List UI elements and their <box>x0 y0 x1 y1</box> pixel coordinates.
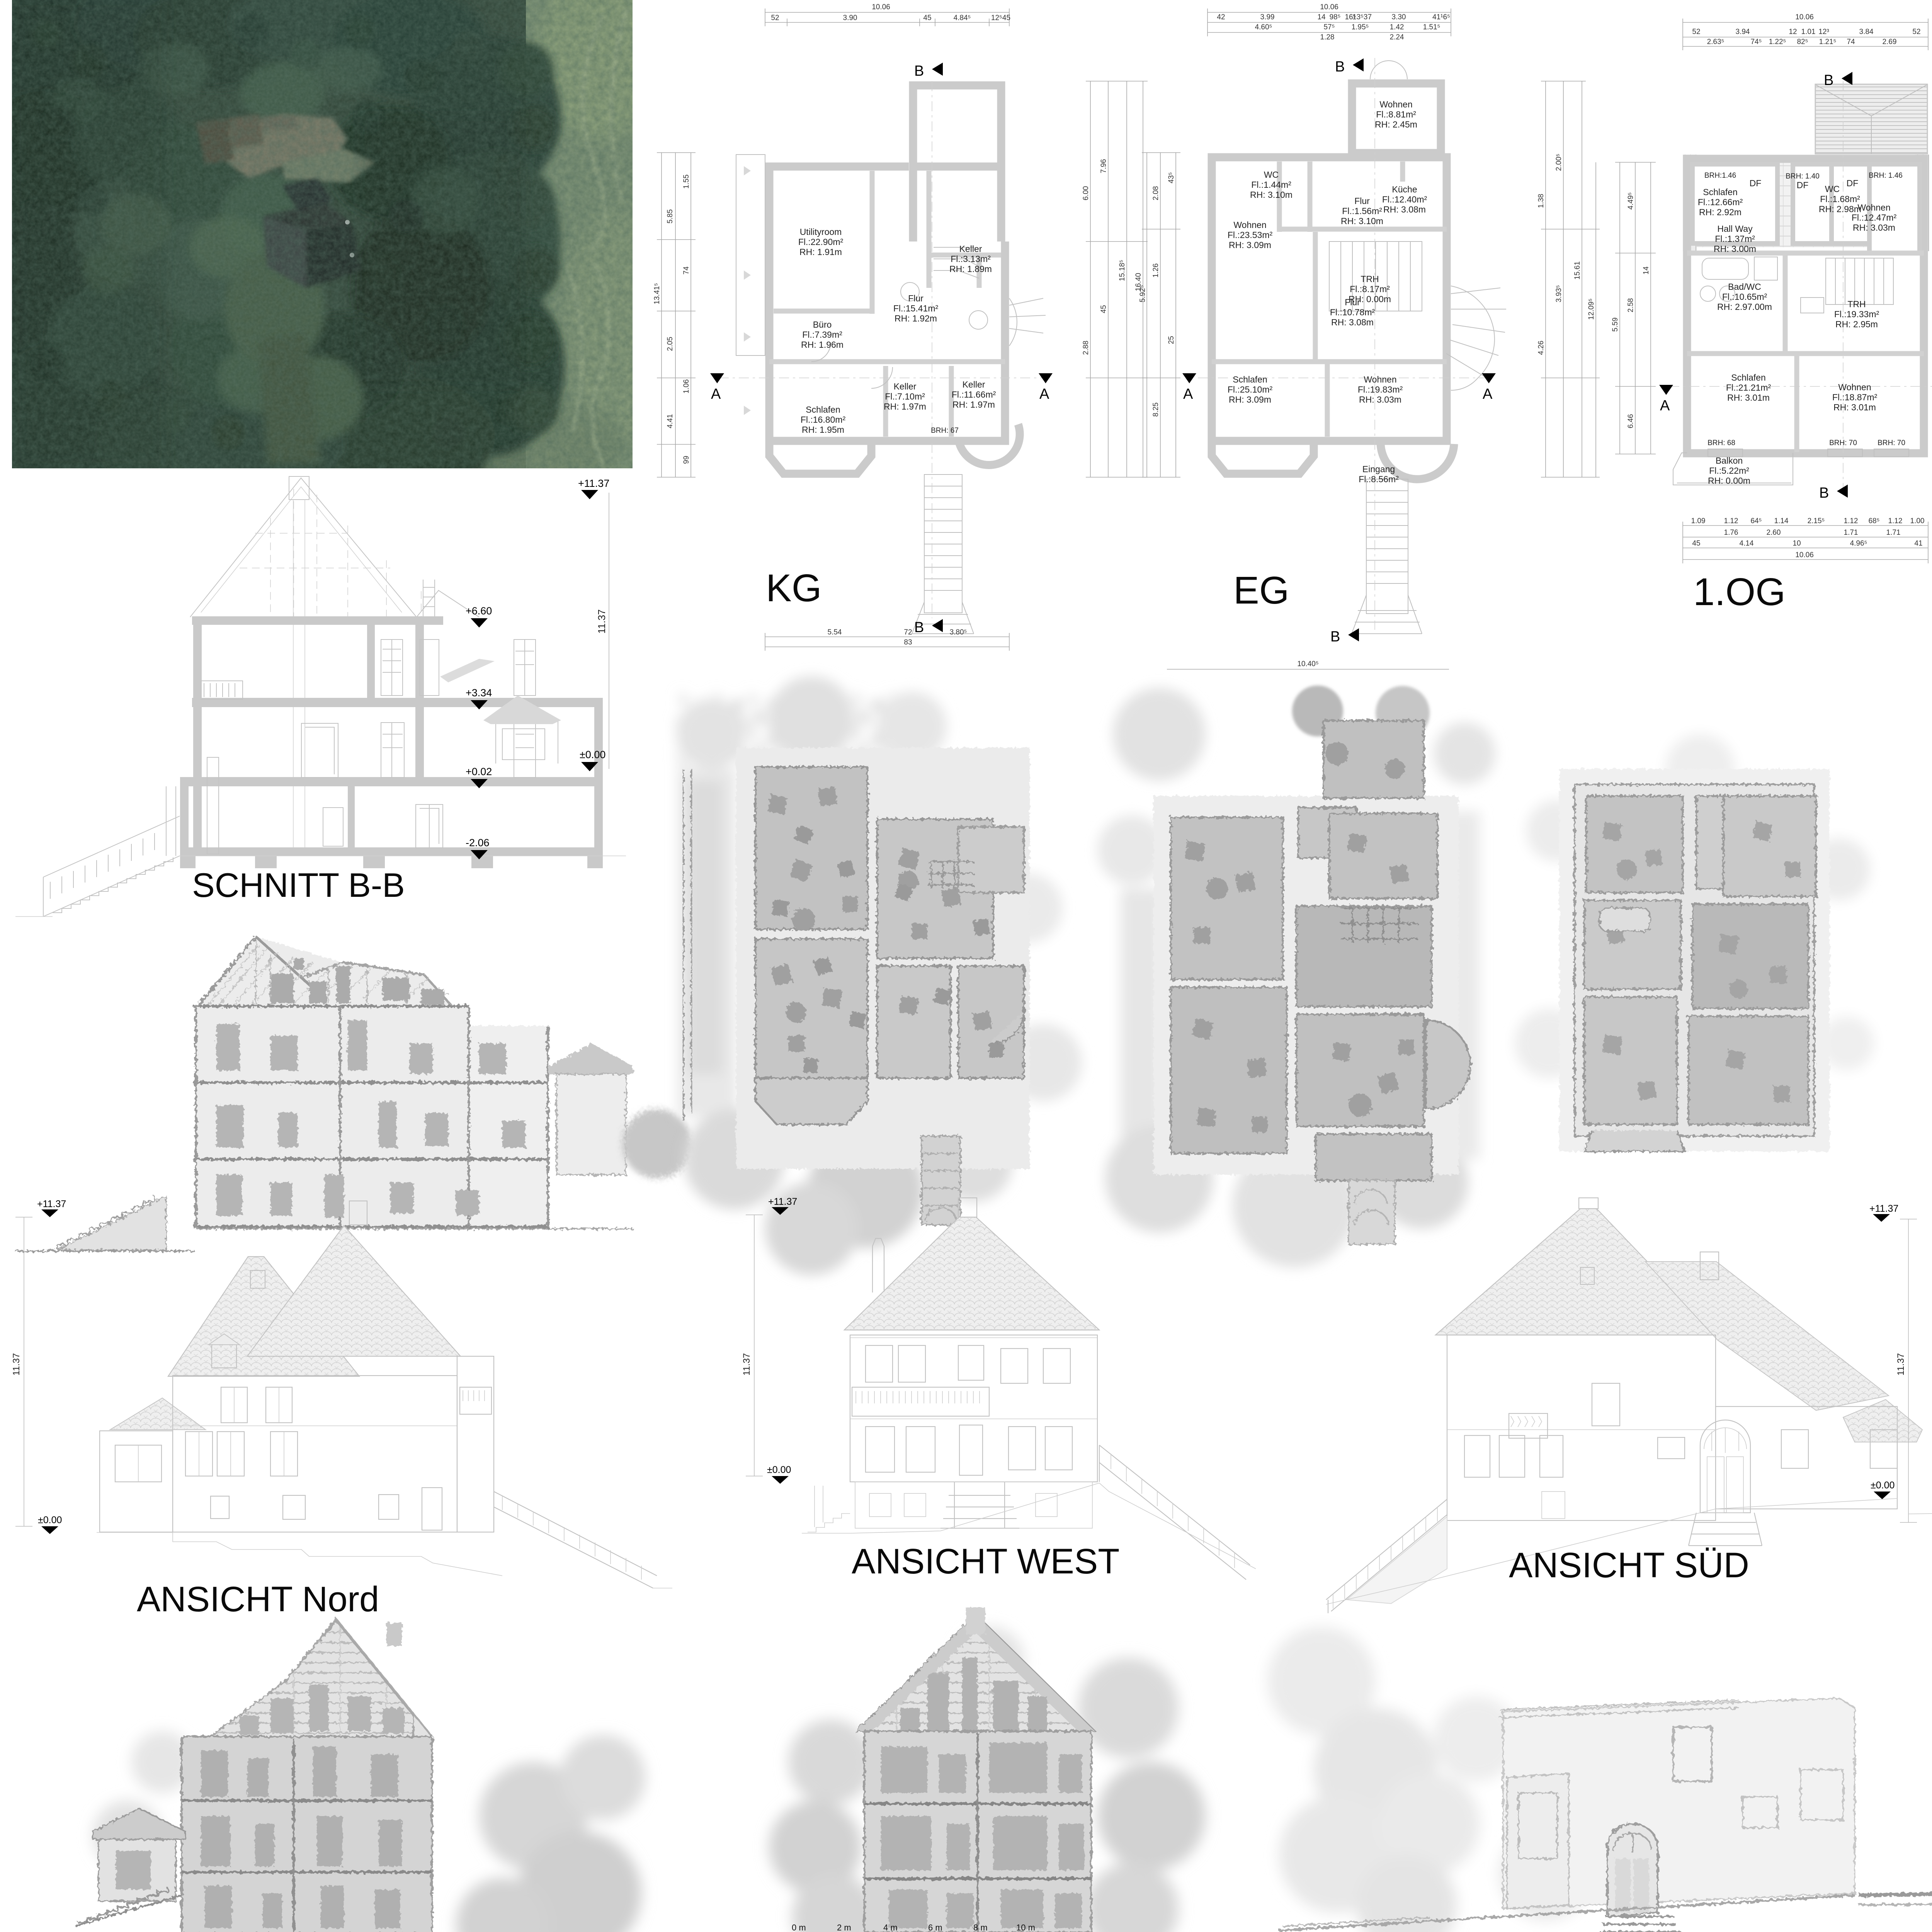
svg-text:Balkon: Balkon <box>1716 456 1743 466</box>
svg-text:1.12: 1.12 <box>1724 517 1738 525</box>
svg-text:B: B <box>1819 485 1829 501</box>
svg-text:TRH: TRH <box>1847 299 1866 309</box>
svg-text:Fl.:19.33m²: Fl.:19.33m² <box>1834 309 1879 319</box>
svg-text:1.22⁵: 1.22⁵ <box>1769 38 1786 46</box>
svg-text:RH: 2.92m: RH: 2.92m <box>1699 207 1742 217</box>
svg-text:BRH: 1.46: BRH: 1.46 <box>1869 172 1903 180</box>
svg-text:1.71: 1.71 <box>1844 529 1858 537</box>
svg-text:2.15⁵: 2.15⁵ <box>1808 517 1825 525</box>
svg-text:±0.00: ±0.00 <box>1871 1480 1895 1491</box>
svg-text:1.01: 1.01 <box>1801 28 1816 36</box>
svg-text:Fl.:10.65m²: Fl.:10.65m² <box>1722 292 1767 302</box>
svg-text:DF: DF <box>1750 178 1762 188</box>
svg-text:Schlafen: Schlafen <box>1703 187 1738 197</box>
svg-text:BRH: 1.40: BRH: 1.40 <box>1786 172 1820 180</box>
svg-text:10: 10 <box>1793 539 1801 548</box>
svg-text:Wohnen: Wohnen <box>1857 202 1890 213</box>
svg-text:5.59: 5.59 <box>1611 318 1619 332</box>
svg-text:11.37: 11.37 <box>742 1353 752 1376</box>
svg-text:52: 52 <box>1912 28 1920 36</box>
svg-text:±0.00: ±0.00 <box>767 1464 791 1475</box>
svg-text:74⁵: 74⁵ <box>1750 38 1762 46</box>
svg-text:RH: 3.03m: RH: 3.03m <box>1853 223 1895 233</box>
svg-text:68⁵: 68⁵ <box>1868 517 1879 525</box>
svg-text:2.58: 2.58 <box>1627 298 1635 313</box>
svg-text:1.00: 1.00 <box>1910 517 1925 525</box>
svg-text:10 m: 10 m <box>1016 1923 1035 1932</box>
svg-text:ANSICHT WEST: ANSICHT WEST <box>852 1542 1119 1581</box>
svg-text:10.06: 10.06 <box>1795 13 1814 21</box>
svg-text:4.96⁵: 4.96⁵ <box>1850 539 1867 548</box>
svg-text:Fl.:12.47m²: Fl.:12.47m² <box>1852 213 1897 223</box>
svg-text:Bad/WC: Bad/WC <box>1728 282 1761 292</box>
svg-text:1.21⁵: 1.21⁵ <box>1819 38 1837 46</box>
svg-text:4.14: 4.14 <box>1740 539 1754 548</box>
svg-text:45: 45 <box>1692 539 1700 548</box>
svg-text:Fl.:21.21m²: Fl.:21.21m² <box>1726 383 1771 393</box>
svg-text:WC: WC <box>1825 184 1840 194</box>
svg-text:1.14: 1.14 <box>1774 517 1789 525</box>
svg-text:+11.37: +11.37 <box>1869 1203 1898 1214</box>
svg-text:4.49⁵: 4.49⁵ <box>1627 192 1635 210</box>
svg-text:11.37: 11.37 <box>11 1353 22 1376</box>
svg-text:3.94: 3.94 <box>1736 28 1750 36</box>
svg-text:6.46: 6.46 <box>1627 414 1635 429</box>
svg-text:BRH:1.46: BRH:1.46 <box>1704 172 1736 180</box>
svg-text:Fl.:5.22m²: Fl.:5.22m² <box>1709 466 1749 476</box>
svg-text:BRH: 70: BRH: 70 <box>1878 439 1905 447</box>
svg-text:1.76: 1.76 <box>1724 529 1738 537</box>
svg-text:1.71: 1.71 <box>1886 529 1901 537</box>
svg-text:+6.60: +6.60 <box>466 605 492 617</box>
svg-text:+11.37: +11.37 <box>768 1196 797 1207</box>
svg-text:82⁵: 82⁵ <box>1797 38 1808 46</box>
svg-text:RH: 2.97.00m: RH: 2.97.00m <box>1717 302 1772 312</box>
svg-text:10.06: 10.06 <box>1795 551 1814 559</box>
svg-text:Fl.:1.37m²: Fl.:1.37m² <box>1715 234 1755 244</box>
svg-text:B: B <box>1824 72 1833 88</box>
svg-text:1.OG: 1.OG <box>1693 570 1786 614</box>
svg-text:52: 52 <box>1692 28 1700 36</box>
svg-text:4 m: 4 m <box>883 1923 898 1932</box>
svg-text:2.60: 2.60 <box>1767 529 1781 537</box>
svg-text:41: 41 <box>1914 539 1922 548</box>
svg-text:Wohnen: Wohnen <box>1838 382 1871 392</box>
svg-text:RH: 3.01m: RH: 3.01m <box>1833 402 1876 412</box>
svg-text:DF: DF <box>1847 178 1859 188</box>
svg-text:RH: 3.01m: RH: 3.01m <box>1727 393 1770 403</box>
svg-text:BRH: 68: BRH: 68 <box>1708 439 1735 447</box>
svg-text:+11.37: +11.37 <box>37 1199 66 1209</box>
svg-text:±0.00: ±0.00 <box>38 1515 62 1526</box>
svg-text:RH: 0.00m: RH: 0.00m <box>1708 476 1750 486</box>
svg-text:3.84: 3.84 <box>1859 28 1874 36</box>
svg-text:0 m: 0 m <box>792 1923 806 1932</box>
svg-text:1.09: 1.09 <box>1691 517 1706 525</box>
svg-text:A: A <box>1660 398 1670 414</box>
svg-text:Fl.:12.66m²: Fl.:12.66m² <box>1698 197 1743 207</box>
svg-text:74: 74 <box>1847 38 1855 46</box>
svg-text:RH: 2.95m: RH: 2.95m <box>1835 319 1878 329</box>
svg-text:ANSICHT SÜD: ANSICHT SÜD <box>1509 1546 1749 1585</box>
svg-text:Hall Way: Hall Way <box>1717 224 1753 234</box>
svg-text:12³: 12³ <box>1818 28 1829 36</box>
svg-text:2.69: 2.69 <box>1883 38 1897 46</box>
svg-text:1.12: 1.12 <box>1888 517 1903 525</box>
svg-text:2 m: 2 m <box>837 1923 851 1932</box>
svg-text:8 m: 8 m <box>973 1923 988 1932</box>
svg-text:6 m: 6 m <box>928 1923 942 1932</box>
svg-text:BRH: 70: BRH: 70 <box>1829 439 1857 447</box>
svg-text:RH: 3.00m: RH: 3.00m <box>1714 244 1756 254</box>
svg-text:DF: DF <box>1797 180 1809 190</box>
svg-text:2.63⁵: 2.63⁵ <box>1707 38 1725 46</box>
svg-text:11.37: 11.37 <box>596 609 607 634</box>
svg-text:14: 14 <box>1642 266 1650 275</box>
svg-text:12: 12 <box>1789 28 1797 36</box>
svg-text:+11.37: +11.37 <box>578 478 609 489</box>
svg-text:Fl.:18.87m²: Fl.:18.87m² <box>1832 392 1878 402</box>
svg-text:10.40⁵: 10.40⁵ <box>1297 660 1318 668</box>
svg-text:Fl.:1.68m²: Fl.:1.68m² <box>1820 194 1860 204</box>
svg-text:Schlafen: Schlafen <box>1731 372 1766 383</box>
svg-text:1.12: 1.12 <box>1844 517 1858 525</box>
svg-text:64⁵: 64⁵ <box>1750 517 1762 525</box>
svg-text:11.37: 11.37 <box>1896 1353 1906 1376</box>
